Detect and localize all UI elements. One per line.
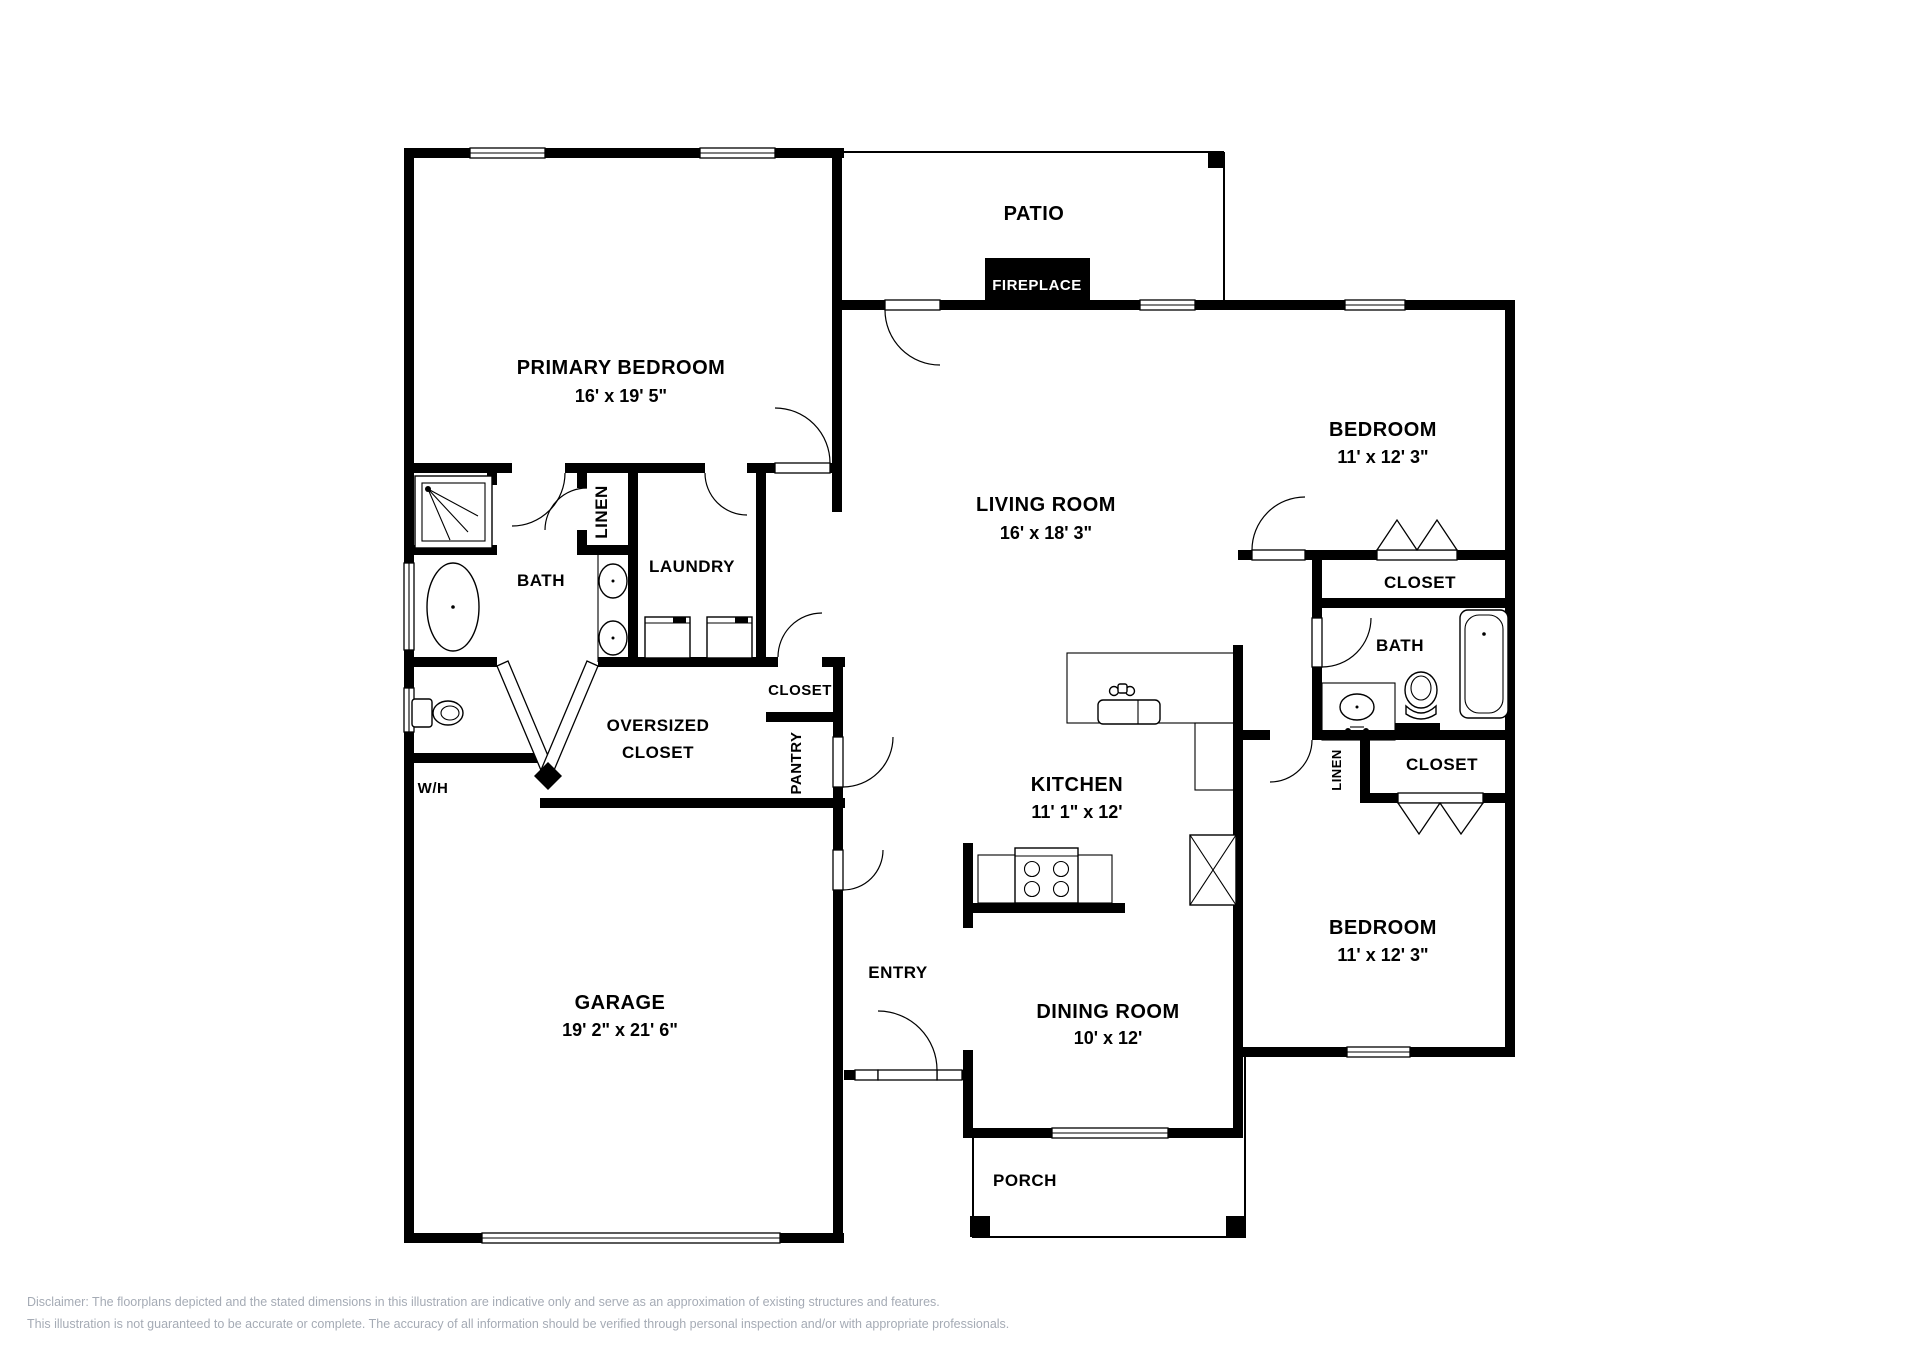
bedroom-top-label: BEDROOM (1329, 419, 1437, 441)
oversized-closet-double-doors (497, 661, 598, 790)
disclaimer: Disclaimer: The floorplans depicted and … (27, 1295, 1009, 1331)
refrigerator-fixture (1190, 835, 1236, 905)
laundry-door (705, 473, 747, 515)
front-door (855, 1011, 962, 1080)
doors (497, 300, 1483, 1080)
bedroom-bottom-door (1270, 740, 1312, 782)
kitchen-label: KITCHEN (1031, 774, 1123, 796)
closet-top-bifold (1377, 520, 1457, 560)
oversized-closet-label-line1: OVERSIZED (607, 716, 710, 735)
dining-room-dims: 10' x 12' (1074, 1028, 1143, 1048)
bathtub-right-fixture (1460, 610, 1508, 718)
shower-fixture (415, 476, 492, 548)
window (1347, 1047, 1410, 1057)
kitchen-sink-fixture (1098, 684, 1160, 724)
disclaimer-line-1: Disclaimer: The floorplans depicted and … (27, 1295, 940, 1309)
patio-label: PATIO (1004, 203, 1065, 225)
window (1052, 1128, 1168, 1138)
dining-room-label: DINING ROOM (1036, 1001, 1179, 1023)
garage-entry-door (833, 850, 883, 890)
window (700, 148, 775, 158)
porch-post-left (970, 1216, 990, 1237)
garage-door (482, 1233, 780, 1243)
window (1140, 300, 1195, 310)
porch-outline (970, 1057, 1246, 1237)
fireplace: FIREPLACE (985, 258, 1090, 310)
window (404, 563, 414, 650)
stove-fixture (978, 848, 1112, 903)
laundry-label: LAUNDRY (649, 557, 735, 576)
linen-left-label: LINEN (592, 485, 611, 539)
porch-label: PORCH (993, 1171, 1057, 1190)
center-closet-door (778, 613, 822, 657)
bedroom-bottom-label: BEDROOM (1329, 917, 1437, 939)
floor-plan-page: FIREPLACE (0, 0, 1920, 1358)
bedroom-top-dims: 11' x 12' 3" (1337, 447, 1428, 467)
window (470, 148, 545, 158)
closet-right-top-label: CLOSET (1384, 573, 1456, 592)
fireplace-label: FIREPLACE (992, 277, 1082, 294)
pantry-label: PANTRY (788, 732, 805, 795)
living-room-label: LIVING ROOM (976, 494, 1116, 516)
closet-right-bottom-label: CLOSET (1406, 755, 1478, 774)
garage-dims: 19' 2" x 21' 6" (562, 1020, 678, 1040)
primary-bedroom-door (775, 408, 830, 473)
bath-left-label: BATH (517, 571, 565, 590)
oversized-closet-label-line2: CLOSET (622, 743, 694, 762)
window (1345, 300, 1405, 310)
entry-label: ENTRY (868, 963, 928, 982)
pantry-door (833, 737, 893, 787)
bath-right-label: BATH (1376, 636, 1424, 655)
toilet-fixture (412, 699, 463, 727)
primary-bedroom-dims: 16' x 19' 5" (575, 386, 667, 406)
dryer-fixture (707, 617, 752, 658)
bedroom-top-door (1252, 497, 1305, 560)
linen-right-label: LINEN (1329, 749, 1344, 791)
bedroom-bottom-dims: 11' x 12' 3" (1337, 945, 1428, 965)
living-room-dims: 16' x 18' 3" (1000, 523, 1092, 543)
patio-door (885, 300, 940, 365)
bath-right-door (1312, 618, 1371, 667)
primary-bath-door (512, 473, 565, 526)
garage-label: GARAGE (575, 992, 666, 1014)
closet-center-label: CLOSET (768, 682, 832, 699)
toilet-right-fixture (1405, 672, 1437, 719)
floor-plan-svg: FIREPLACE (0, 0, 1920, 1358)
patio-corner-post (1208, 152, 1224, 168)
disclaimer-line-2: This illustration is not guaranteed to b… (27, 1317, 1009, 1331)
bathtub-fixture (427, 563, 479, 651)
closet-bottom-bifold (1398, 793, 1483, 834)
water-heater-label: W/H (418, 780, 449, 797)
primary-bedroom-label: PRIMARY BEDROOM (517, 357, 726, 379)
kitchen-dims: 11' 1" x 12' (1031, 802, 1122, 822)
washer-fixture (645, 617, 690, 658)
porch-post-right (1226, 1216, 1246, 1237)
